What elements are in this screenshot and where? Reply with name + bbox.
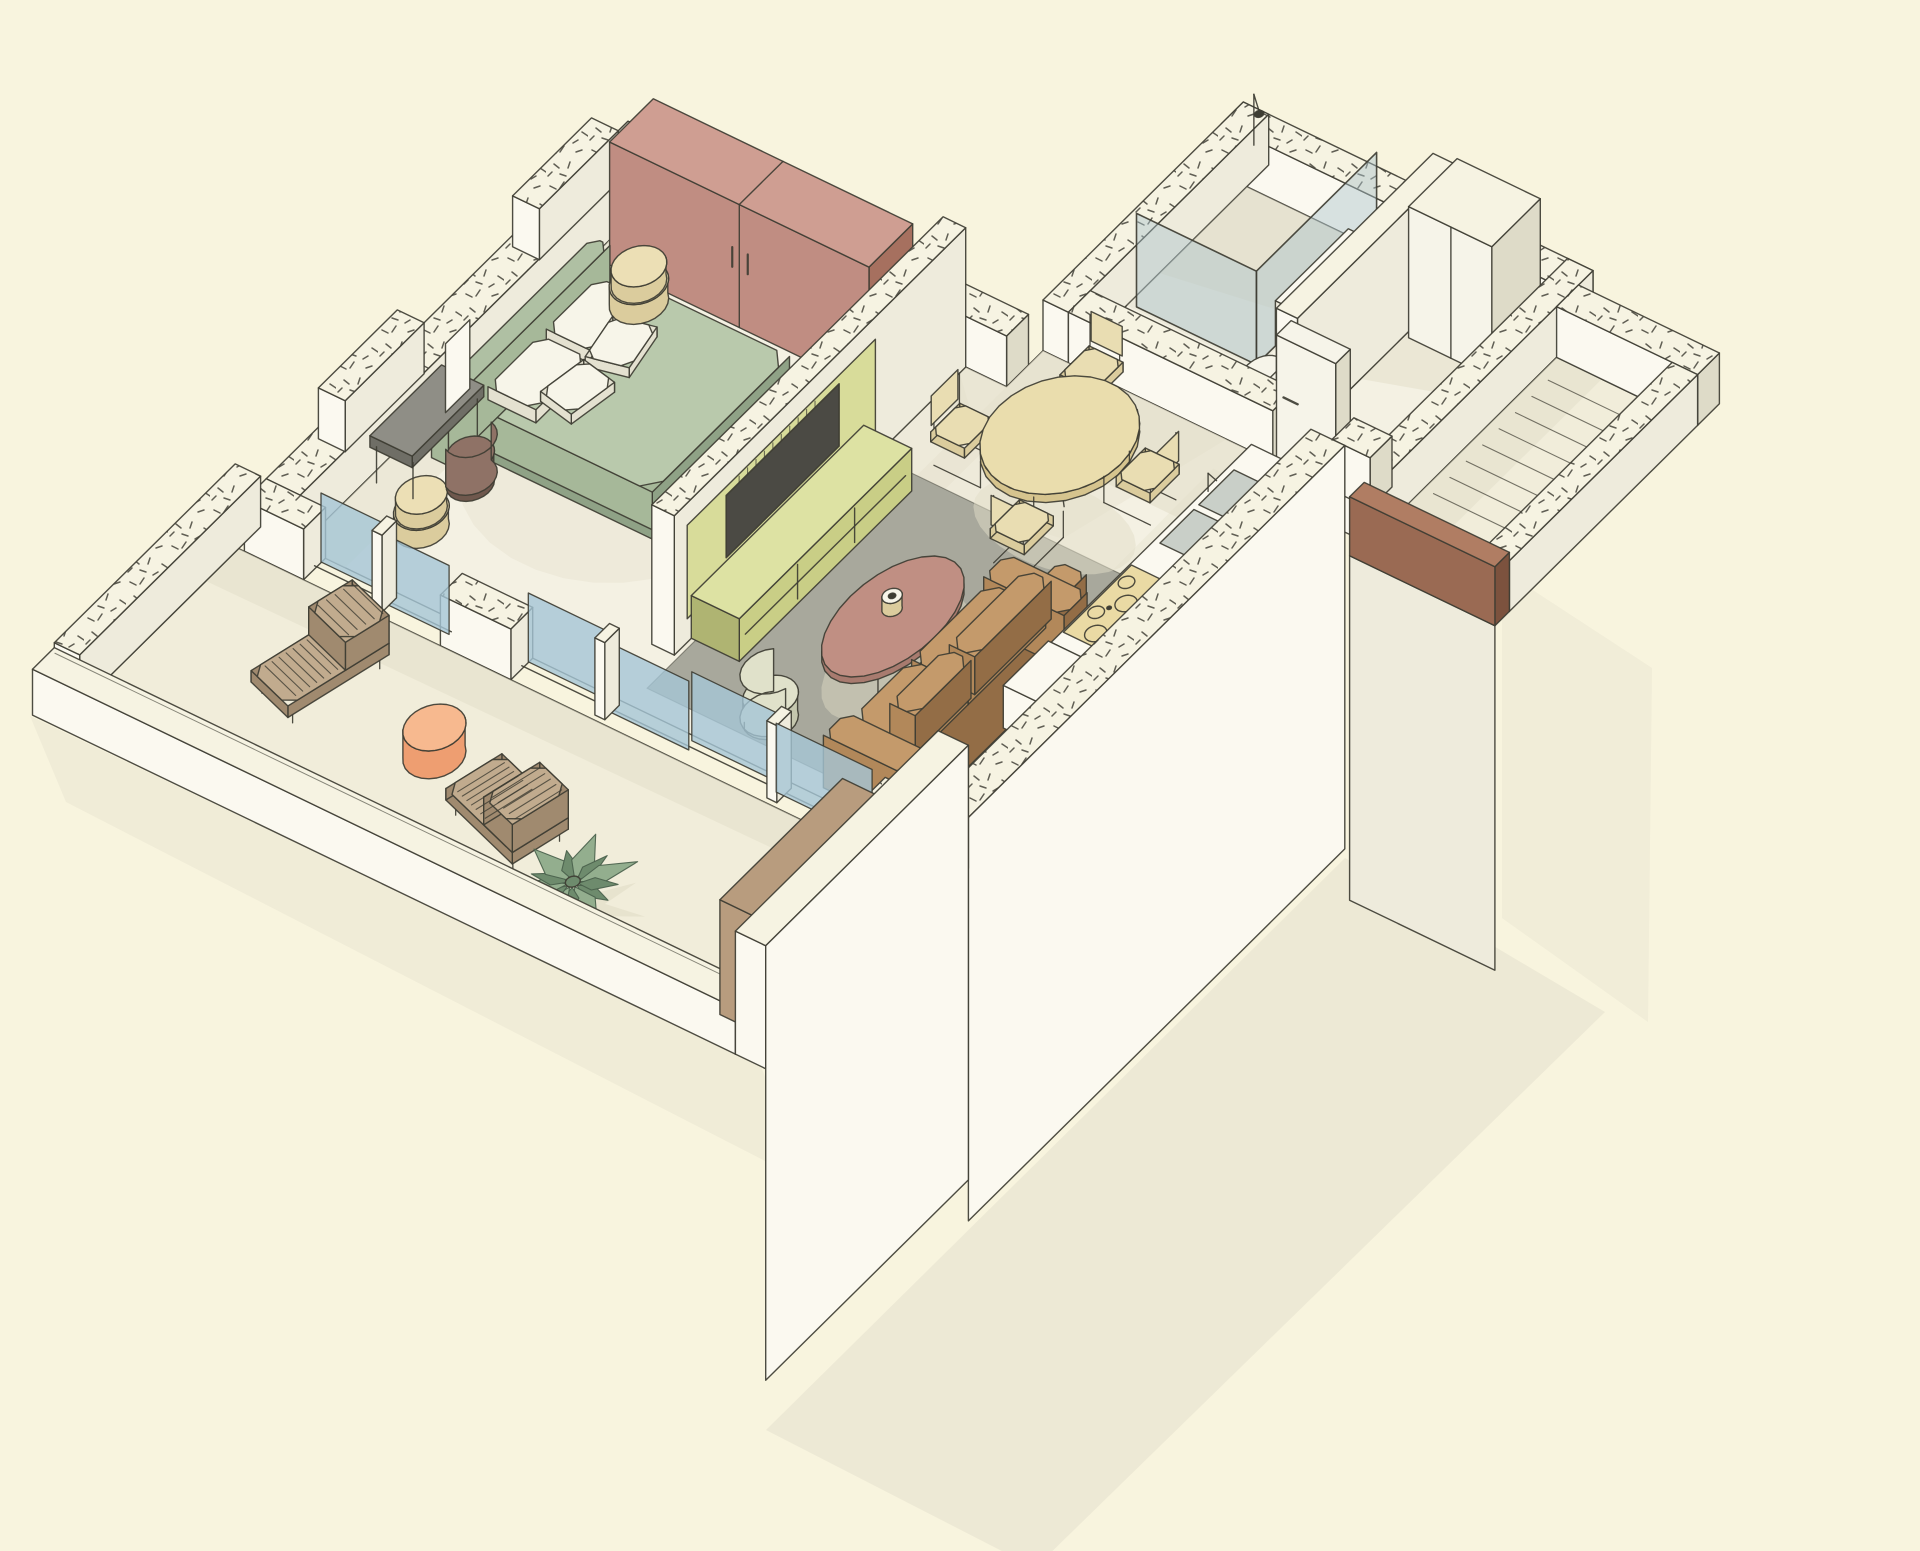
floor-plan-canvas: Axonometric apartment floor plan illustr… — [0, 0, 1920, 1551]
pouf-side-table-top — [395, 476, 447, 529]
pouf-side-table-top — [611, 246, 667, 304]
cooktop-knob — [1107, 606, 1112, 610]
stair-exterior-wall — [1350, 556, 1495, 970]
cup-dot — [888, 593, 895, 599]
window-post — [595, 624, 619, 720]
balcony-pouf — [403, 704, 466, 779]
shower-head-icon — [1254, 111, 1263, 118]
axonometric-floor-plan: Axonometric apartment floor plan illustr… — [0, 0, 1920, 1551]
window-post — [372, 516, 396, 612]
